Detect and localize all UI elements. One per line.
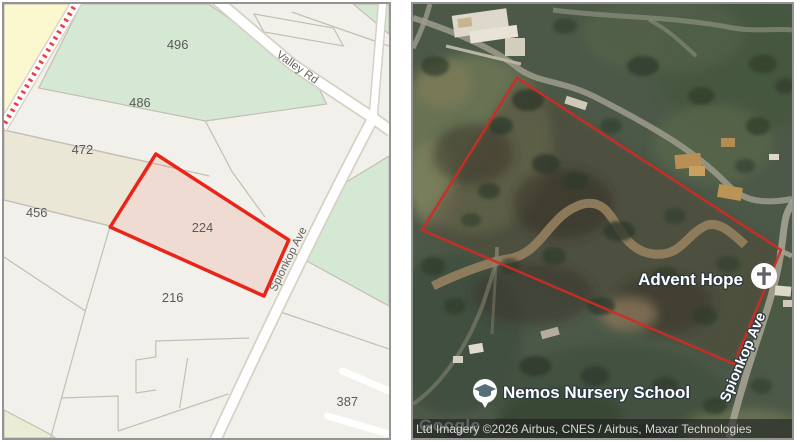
parcel-label-496: 496	[167, 37, 189, 52]
cadastral-map-image[interactable]: 496 486 472 456 224 216 387 Valley Rd Sp…	[2, 2, 391, 440]
satellite-map-canvas: Google Ltd Imagery ©2026 Airbus, CNES / …	[413, 4, 792, 438]
map-pair: 496 486 472 456 224 216 387 Valley Rd Sp…	[0, 0, 800, 442]
satellite-map-image[interactable]: Google Ltd Imagery ©2026 Airbus, CNES / …	[411, 2, 794, 440]
parcel-label-456: 456	[26, 205, 48, 220]
advent-hope-label: Advent Hope	[638, 270, 743, 289]
parcel-label-224: 224	[192, 220, 214, 235]
parcel-label-387: 387	[337, 394, 359, 409]
cadastral-map-canvas: 496 486 472 456 224 216 387 Valley Rd Sp…	[4, 4, 389, 438]
parcel-label-486: 486	[129, 95, 151, 110]
parcel-label-472: 472	[72, 142, 94, 157]
nemos-nursery-school-label: Nemos Nursery School	[503, 383, 690, 402]
parcel-label-216: 216	[162, 290, 184, 305]
church-icon	[751, 263, 777, 289]
map-attribution: Ltd Imagery ©2026 Airbus, CNES / Airbus,…	[416, 422, 751, 436]
